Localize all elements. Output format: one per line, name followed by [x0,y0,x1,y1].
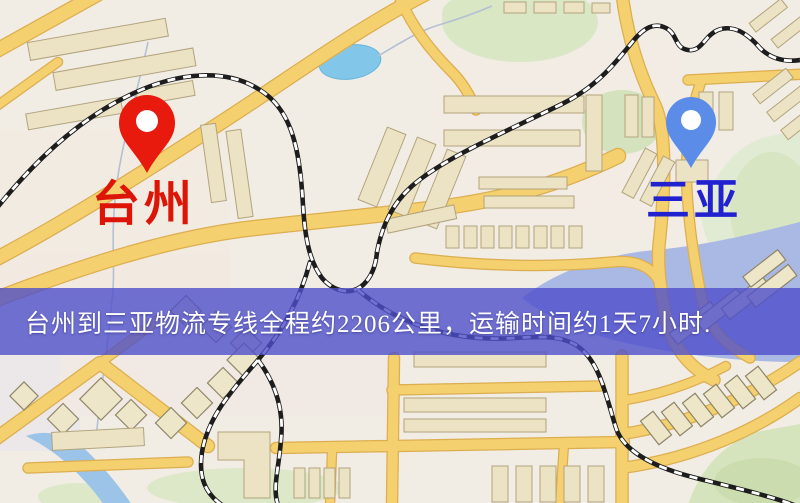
route-info-text: 台州到三亚物流专线全程约2206公里，运输时间约1天7小时. [25,304,711,340]
destination-pin-icon [666,97,716,168]
origin-label: 台州 [92,181,196,229]
origin-pin-icon [119,95,175,173]
route-info-banner: 台州到三亚物流专线全程约2206公里，运输时间约1天7小时. [0,288,800,355]
destination-label: 三亚 [646,179,742,223]
map-canvas: 台州 三亚 台州到三亚物流专线全程约2206公里，运输时间约1天7小时. [0,0,800,503]
pins-layer [0,0,800,503]
